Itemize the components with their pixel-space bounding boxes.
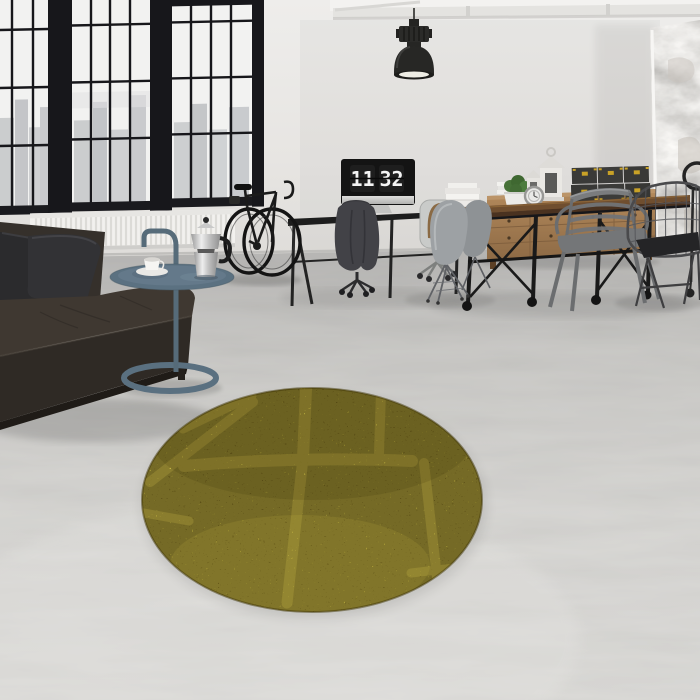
loft-room-photo: 11 32 [0, 0, 700, 700]
moka-knob [203, 217, 209, 223]
window-b [70, 0, 152, 212]
jacket [335, 201, 379, 270]
ceiling-pipe [330, 0, 700, 20]
window-c [170, 0, 264, 207]
moka-top [191, 234, 221, 249]
moka-boiler [194, 252, 218, 277]
window-post [252, 0, 264, 207]
gauge-clock [525, 187, 543, 205]
window-a [0, 0, 50, 215]
window-wall [0, 0, 264, 252]
window-post [48, 0, 72, 215]
caster [527, 297, 537, 307]
lamp-diffuser [399, 72, 429, 78]
caster [591, 295, 601, 305]
saddle [234, 184, 252, 190]
crank [253, 242, 261, 250]
wall-mount [229, 196, 240, 204]
caster [462, 301, 472, 311]
window-post [150, 0, 172, 211]
scene-canvas: 11 32 [0, 0, 700, 700]
